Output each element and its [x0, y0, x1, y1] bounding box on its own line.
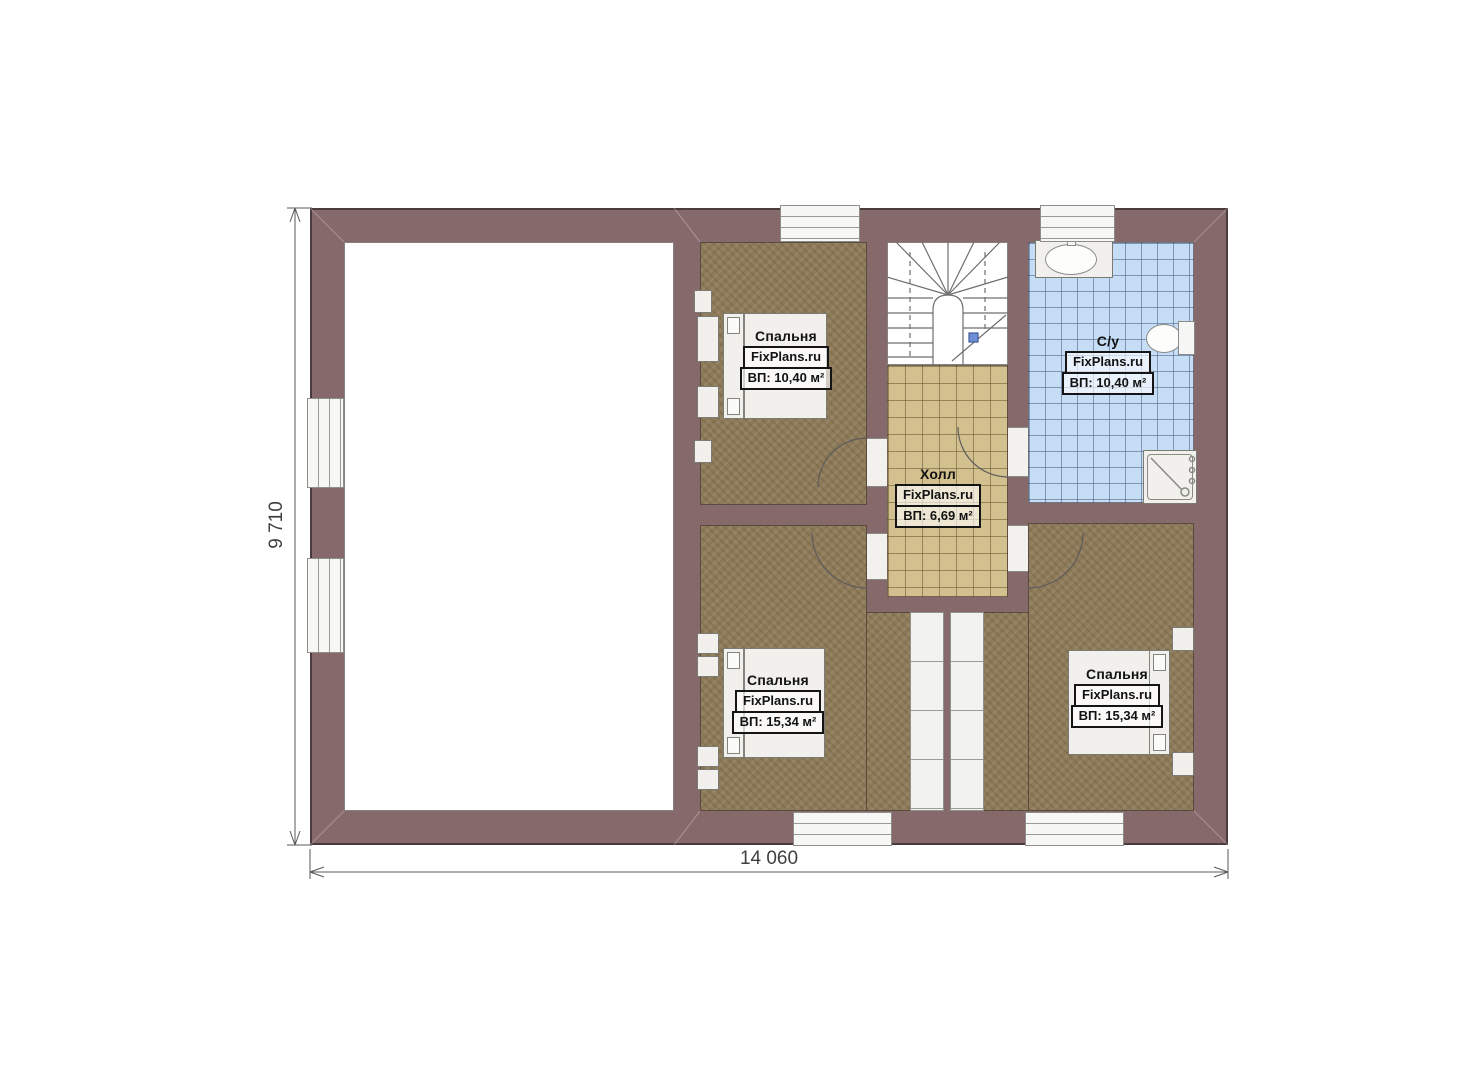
watermark-text: FixPlans.ru: [1082, 687, 1152, 702]
door-bathroom: [1008, 427, 1028, 477]
stairwell: [887, 242, 1008, 365]
watermark-text: FixPlans.ru: [903, 487, 973, 502]
sink-basin: [1045, 244, 1097, 275]
area-text: ВП: 6,69 м²: [903, 508, 973, 523]
room-name: Спальня: [1086, 666, 1148, 682]
room-name: Холл: [920, 466, 956, 482]
sink-icon: [1035, 240, 1113, 278]
nightstand-icon: [697, 386, 719, 418]
area-box: ВП: 10,40 м²: [740, 367, 833, 390]
dimension-height-label: 9 710: [266, 490, 288, 560]
area-box: ВП: 15,34 м²: [732, 711, 825, 734]
area-box: ВП: 6,69 м²: [895, 505, 981, 528]
nightstand-icon: [697, 769, 719, 790]
watermark-text: FixPlans.ru: [751, 349, 821, 364]
watermark-box: FixPlans.ru: [895, 484, 981, 507]
area-text: ВП: 15,34 м²: [1079, 708, 1156, 723]
room-label-bedroom-bottom-right: Спальня FixPlans.ru ВП: 15,34 м²: [1047, 666, 1187, 728]
floor-plan: Спальня FixPlans.ru ВП: 10,40 м² С/у Fix…: [0, 0, 1473, 1080]
pillow-icon: [727, 398, 740, 415]
room-label-hall: Холл FixPlans.ru ВП: 6,69 м²: [868, 466, 1008, 528]
window-top-bedroom: [780, 205, 860, 242]
toilet-tank: [1178, 321, 1195, 355]
pillow-icon: [1153, 734, 1166, 751]
watermark-box: FixPlans.ru: [1065, 351, 1151, 374]
shower-icon: [1143, 450, 1197, 504]
pillow-icon: [727, 737, 740, 754]
dimension-width-label: 14 060: [310, 848, 1228, 870]
wall-niche: [694, 440, 712, 463]
room-label-bathroom: С/у FixPlans.ru ВП: 10,40 м²: [1038, 333, 1178, 395]
nightstand-icon: [697, 633, 719, 654]
nightstand-icon: [1172, 627, 1194, 651]
area-text: ВП: 15,34 м²: [740, 714, 817, 729]
shower-tray: [1147, 454, 1193, 500]
wall-niche: [694, 290, 712, 313]
window-bottom-right: [1025, 812, 1124, 846]
door-bedroom-bottom-left: [867, 533, 887, 580]
wardrobe-icon: [950, 612, 984, 811]
room-name: Спальня: [755, 328, 817, 344]
watermark-box: FixPlans.ru: [743, 346, 829, 369]
room-empty-left: [344, 242, 674, 811]
window-top-bathroom: [1040, 205, 1115, 242]
room-label-bedroom-top: Спальня FixPlans.ru ВП: 10,40 м²: [716, 328, 856, 390]
watermark-box: FixPlans.ru: [735, 690, 821, 713]
window-left-2: [307, 558, 344, 653]
door-bedroom-bottom-right: [1008, 525, 1028, 572]
watermark-text: FixPlans.ru: [1073, 354, 1143, 369]
room-label-bedroom-bottom-left: Спальня FixPlans.ru ВП: 15,34 м²: [708, 672, 848, 734]
room-name: Спальня: [747, 672, 809, 688]
area-text: ВП: 10,40 м²: [748, 370, 825, 385]
room-name: С/у: [1097, 333, 1119, 349]
watermark-text: FixPlans.ru: [743, 693, 813, 708]
nightstand-icon: [697, 746, 719, 767]
watermark-box: FixPlans.ru: [1074, 684, 1160, 707]
window-bottom-left: [793, 812, 892, 846]
window-left-1: [307, 398, 344, 488]
area-box: ВП: 10,40 м²: [1062, 372, 1155, 395]
area-box: ВП: 15,34 м²: [1071, 705, 1164, 728]
pillow-icon: [727, 652, 740, 669]
area-text: ВП: 10,40 м²: [1070, 375, 1147, 390]
nightstand-icon: [1172, 752, 1194, 776]
wardrobe-icon: [910, 612, 944, 811]
